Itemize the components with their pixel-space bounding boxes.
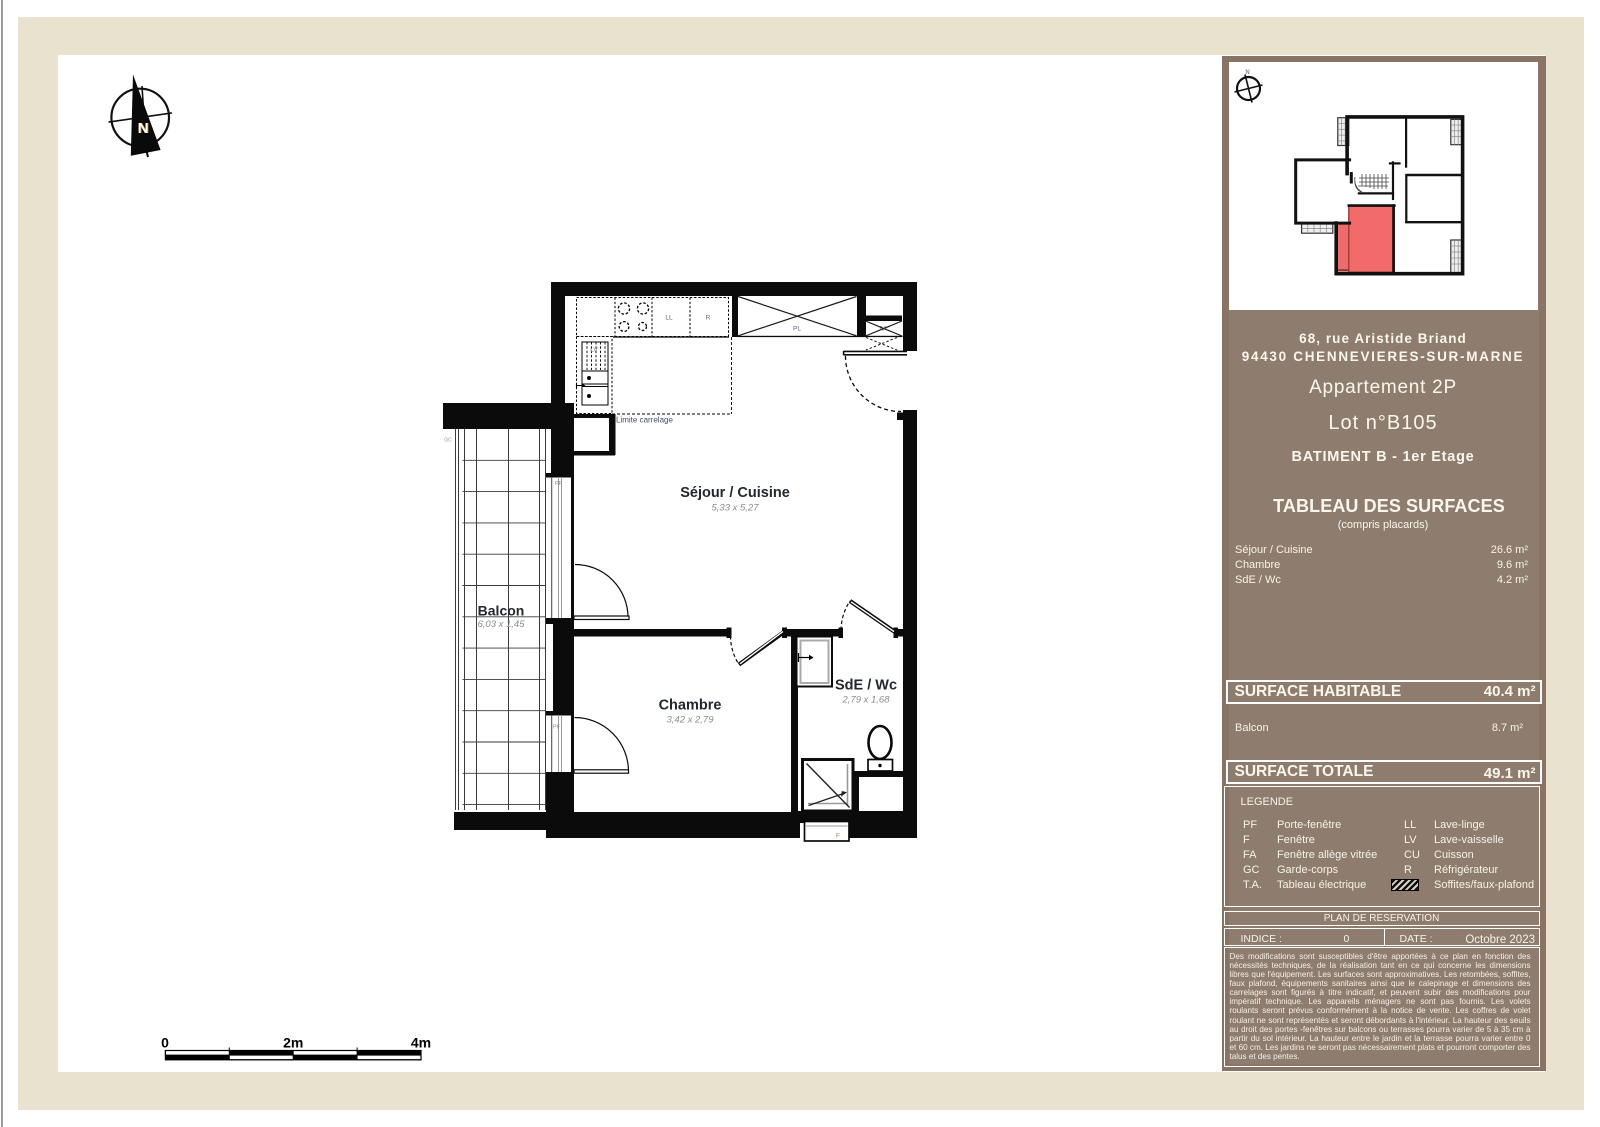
svg-text:GC: GC	[444, 438, 452, 444]
svg-text:SdE / Wc: SdE / Wc	[835, 678, 897, 694]
svg-text:Séjour / Cuisine: Séjour / Cuisine	[680, 485, 790, 501]
svg-text:PF: PF	[553, 725, 561, 731]
svg-text:Limite carrelage: Limite carrelage	[616, 416, 673, 425]
svg-text:LV: LV	[590, 347, 598, 354]
svg-text:2m: 2m	[283, 1035, 303, 1051]
svg-text:Chambre: Chambre	[659, 698, 722, 714]
svg-text:Balcon: Balcon	[478, 603, 525, 619]
svg-text:2,79 x 1,68: 2,79 x 1,68	[841, 695, 890, 706]
svg-text:LL: LL	[665, 315, 673, 322]
svg-text:6,03 x 1,45: 6,03 x 1,45	[477, 619, 525, 630]
svg-text:4m: 4m	[411, 1035, 431, 1051]
svg-text:5,33 x 5,27: 5,33 x 5,27	[711, 503, 759, 514]
svg-text:F: F	[836, 833, 840, 840]
svg-text:N: N	[1245, 70, 1249, 76]
svg-text:0: 0	[161, 1035, 169, 1051]
svg-text:PF: PF	[555, 481, 563, 487]
svg-text:PL: PL	[793, 326, 801, 333]
svg-text:T.A.: T.A.	[878, 327, 889, 333]
svg-text:N: N	[138, 120, 149, 137]
svg-text:R: R	[706, 315, 711, 322]
svg-text:3,42 x 2,79: 3,42 x 2,79	[666, 715, 714, 726]
